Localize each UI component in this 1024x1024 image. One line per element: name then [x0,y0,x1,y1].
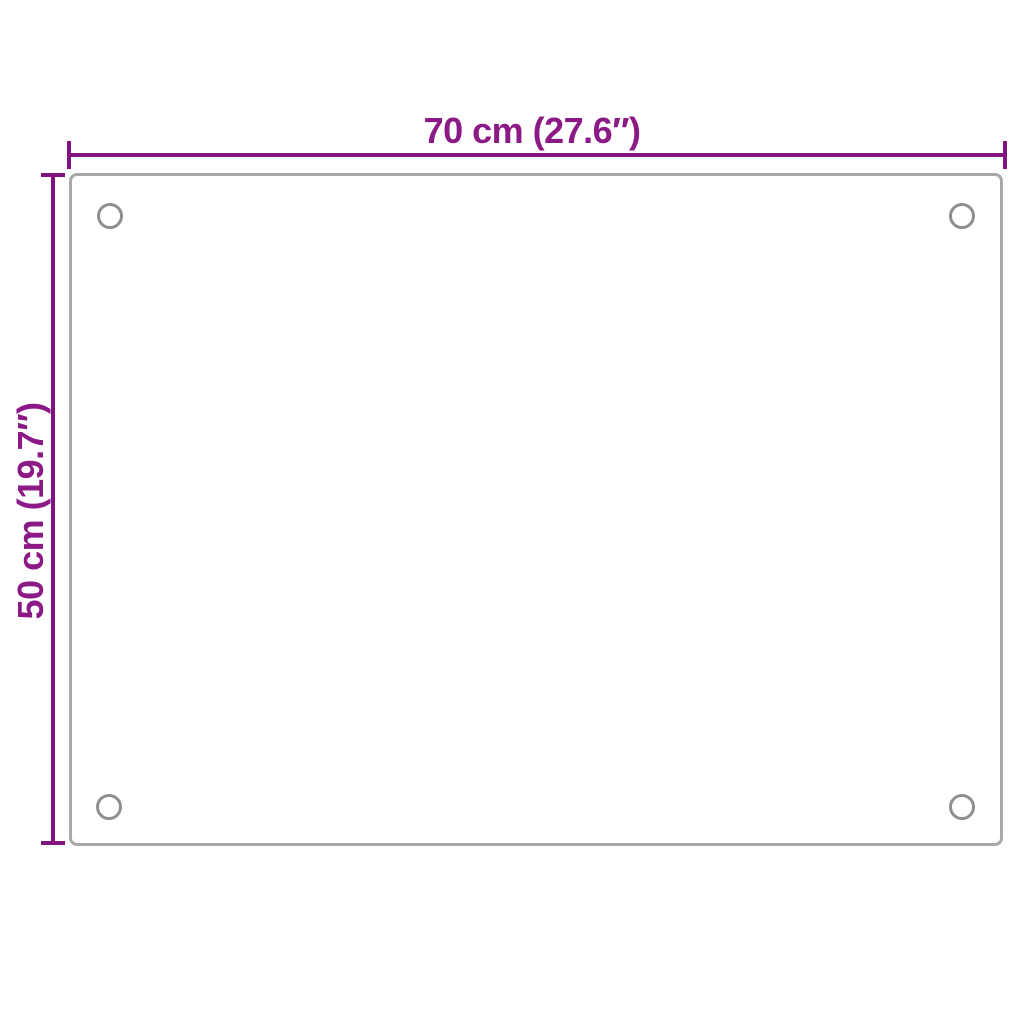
width-dimension-tick-right [1003,141,1007,169]
mounting-hole-bottom-left-icon [96,794,122,820]
width-dimension-label: 70 cm (27.6″) [424,113,641,149]
width-dimension-line [69,153,1005,157]
height-dimension-tick-top [41,173,65,177]
height-dimension-label: 50 cm (19.7″) [13,403,49,620]
mounting-hole-bottom-right-icon [949,794,975,820]
height-dimension-tick-bottom [41,841,65,845]
height-dimension-line [51,175,55,843]
product-dimension-diagram: 70 cm (27.6″) 50 cm (19.7″) [0,0,1024,1024]
splashback-panel [69,173,1003,846]
mounting-hole-top-left-icon [97,203,123,229]
mounting-hole-top-right-icon [949,203,975,229]
width-dimension-tick-left [67,141,71,169]
